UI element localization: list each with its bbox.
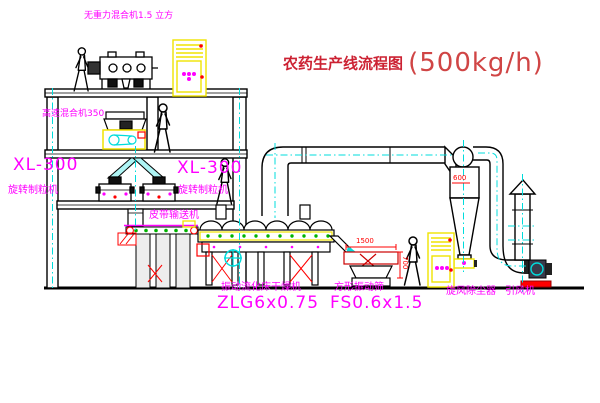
- label-sieve-name: 方形振动筛: [334, 283, 384, 293]
- label-belt-conveyor: 皮带输送机: [149, 211, 199, 221]
- dim-sieve-height: 700: [401, 256, 408, 269]
- diagram-capacity: (500kg/h): [408, 48, 544, 78]
- label-dryer-name: 振动流化床干燥机: [221, 283, 301, 293]
- label-granulator-left-name: 旋转制粒机: [8, 186, 58, 196]
- fan-drawing: [521, 258, 552, 287]
- belt-conveyor-drawing: [118, 221, 198, 288]
- label-cyclone: 旋风除尘器: [446, 287, 496, 297]
- title-block: 农药生产线流程图 (500kg/h): [283, 48, 544, 78]
- person-top-floor: [74, 48, 88, 91]
- label-granulator-center-model: XL-300: [177, 160, 242, 177]
- label-granulator-center-name: 旋转制粒机: [178, 186, 228, 196]
- dim-cyclone-outlet: 600: [453, 175, 466, 182]
- gravity-free-mixer-drawing: [88, 52, 158, 89]
- label-granulator-left-model: XL-300: [13, 157, 78, 174]
- label-fan: 引风机: [505, 287, 535, 297]
- fluid-bed-dryer-drawing: [197, 205, 356, 285]
- high-speed-mixer-drawing: [103, 112, 146, 149]
- diagram-title: 农药生产线流程图: [283, 55, 403, 73]
- granulators-drawing: [96, 177, 178, 201]
- process-flow-diagram: 农药生产线流程图 (500kg/h) 无重力混合机1.5 立方 高速混合机350…: [0, 0, 600, 403]
- control-cabinet-top: [173, 40, 206, 96]
- label-high-speed-mixer: 高速混合机350: [42, 110, 104, 119]
- dim-sieve-length: 1500: [356, 238, 374, 245]
- label-dryer-model: ZLG6x0.75: [217, 295, 319, 312]
- label-sieve-model: FS0.6x1.5: [330, 295, 423, 312]
- control-cabinet-ground: [428, 233, 454, 287]
- exhaust-duct-to-cyclone: [262, 147, 445, 216]
- label-gravity-free-mixer: 无重力混合机1.5 立方: [84, 12, 173, 21]
